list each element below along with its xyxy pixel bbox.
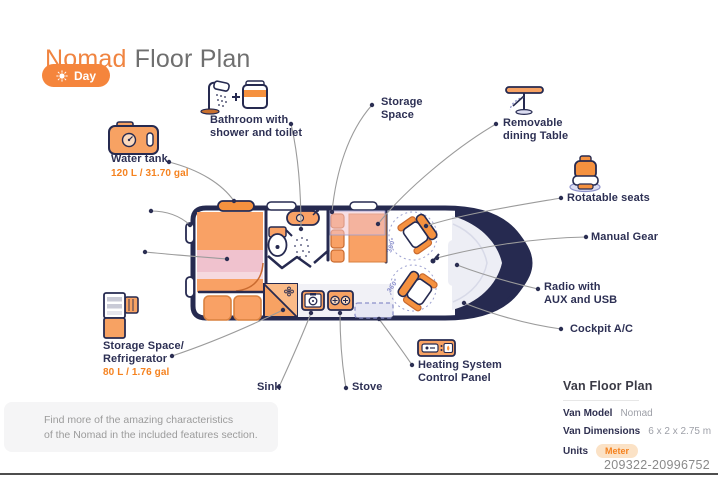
callout-stove: Stove	[352, 381, 382, 394]
water-tank-capacity: 120 L / 31.70 gal	[111, 168, 189, 181]
stove-label: Stove	[352, 381, 382, 394]
callout-rotatable-seats: Rotatable seats	[567, 192, 650, 205]
center-console	[448, 240, 460, 286]
line-stove	[340, 313, 346, 388]
page-title-rest: Floor Plan	[135, 45, 251, 73]
kitchen-area	[263, 284, 394, 318]
line-sink	[279, 313, 311, 387]
fridge-capacity: 80 L / 1.76 gal	[103, 367, 184, 380]
roof-water-tank	[218, 201, 254, 211]
day-mode-label: Day	[74, 69, 96, 83]
water-tank-icon	[109, 122, 158, 154]
callout-storage-space: Storage Space	[381, 96, 423, 121]
toilet-icon	[243, 81, 267, 108]
van-info-title: Van Floor Plan	[563, 379, 713, 393]
cockpit-ac-label: Cockpit A/C	[570, 323, 633, 336]
radio-label-line2: AUX and USB	[544, 294, 617, 307]
sink-label: Sink	[257, 381, 281, 394]
units-badge[interactable]: Meter	[596, 444, 638, 458]
rotatable-seats-label: Rotatable seats	[567, 192, 650, 205]
van-model-row: Van Model Nomad	[563, 408, 713, 419]
line-rear-sensors	[151, 211, 190, 225]
bottom-border	[0, 473, 718, 475]
fridge-icon	[104, 293, 138, 338]
floor-plan-page: 360° 360°	[0, 0, 718, 480]
dinette-area	[330, 211, 386, 262]
bathroom-label-line1: Bathroom with	[210, 114, 302, 127]
heating-label-line2: Control Panel	[418, 372, 502, 385]
bathroom-label-line2: shower and toilet	[210, 127, 302, 140]
water-tank-label: Water tank	[111, 153, 189, 166]
callout-radio: Radio with AUX and USB	[544, 281, 617, 306]
day-mode-toggle[interactable]: Day	[42, 64, 110, 87]
callout-dining-table: Removable dining Table	[503, 117, 568, 142]
van-model-label: Van Model	[563, 408, 612, 419]
dining-table-label-line1: Removable	[503, 117, 568, 130]
reference-code: 209322-20996752	[604, 458, 710, 472]
kitchen-counter	[264, 284, 297, 317]
fridge-label-line1: Storage Space/	[103, 340, 184, 353]
callout-bathroom: Bathroom with shower and toilet	[210, 114, 302, 139]
kitchen-sink	[302, 291, 324, 310]
features-note: Find more of the amazing characteristics…	[4, 402, 278, 452]
van-dimensions-row: Van Dimensions 6 x 2 x 2.75 m	[563, 426, 713, 437]
plus-icon	[232, 93, 240, 101]
callout-fridge: Storage Space/ Refrigerator 80 L / 1.76 …	[103, 340, 184, 380]
callout-sink: Sink	[257, 381, 281, 394]
dining-table-icon	[506, 87, 543, 114]
dining-table-label-line2: dining Table	[503, 130, 568, 143]
radio-label-line1: Radio with	[544, 281, 617, 294]
rotatable-seat-icon	[570, 156, 600, 192]
heating-control-zone	[355, 303, 393, 318]
units-row: Units Meter	[563, 444, 713, 458]
van-info-panel: Van Floor Plan Van Model Nomad Van Dimen…	[563, 379, 713, 458]
van-dimensions-label: Van Dimensions	[563, 426, 640, 437]
storage-space-label-line2: Space	[381, 109, 423, 122]
panel-divider	[563, 400, 639, 401]
storage-space-label-line1: Storage	[381, 96, 423, 109]
features-note-line2: of the Nomad in the included features se…	[44, 428, 278, 443]
units-label: Units	[563, 446, 588, 457]
line-storage-space	[332, 105, 372, 212]
stove	[328, 291, 353, 310]
fridge-label-line2: Refrigerator	[103, 353, 184, 366]
heating-panel-icon	[418, 340, 455, 356]
features-note-line1: Find more of the amazing characteristics	[44, 413, 278, 428]
bed	[197, 212, 263, 292]
van-dimensions-value: 6 x 2 x 2.75 m	[648, 426, 711, 437]
toilet	[269, 227, 287, 256]
heating-label-line1: Heating System	[418, 359, 502, 372]
sun-icon	[56, 70, 68, 82]
line-heating	[379, 319, 412, 365]
callout-heating: Heating System Control Panel	[418, 359, 502, 384]
callout-water-tank: Water tank 120 L / 31.70 gal	[111, 153, 189, 180]
van-model-value: Nomad	[620, 408, 652, 419]
callout-cockpit-ac: Cockpit A/C	[570, 323, 633, 336]
shower-icon	[201, 81, 230, 114]
manual-gear-label: Manual Gear	[591, 231, 658, 244]
callout-manual-gear: Manual Gear	[591, 231, 658, 244]
